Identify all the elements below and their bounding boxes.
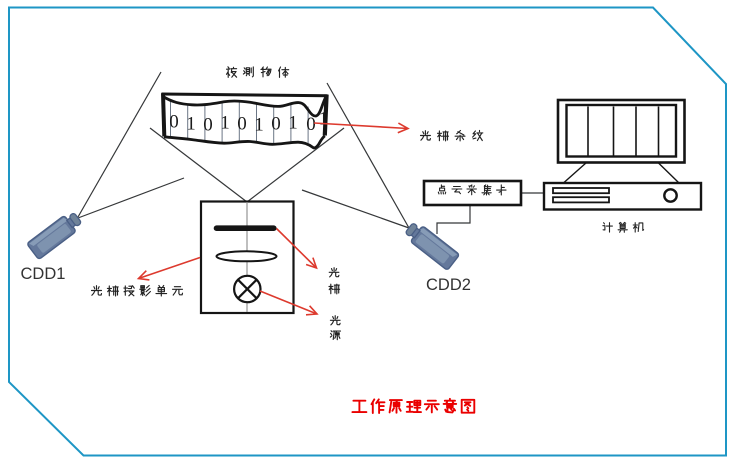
- svg-text:0: 0: [169, 112, 179, 133]
- svg-text:1: 1: [186, 114, 196, 135]
- svg-text:0: 0: [306, 114, 316, 135]
- svg-text:1: 1: [220, 113, 230, 134]
- svg-text:1: 1: [254, 115, 264, 136]
- svg-text:0: 0: [203, 115, 213, 136]
- svg-text:1: 1: [319, 109, 329, 130]
- svg-text:0: 0: [271, 114, 281, 135]
- svg-text:1: 1: [288, 113, 298, 134]
- svg-text:CDD2: CDD2: [426, 276, 471, 294]
- svg-text:0: 0: [237, 114, 247, 135]
- svg-text:CDD1: CDD1: [21, 265, 66, 283]
